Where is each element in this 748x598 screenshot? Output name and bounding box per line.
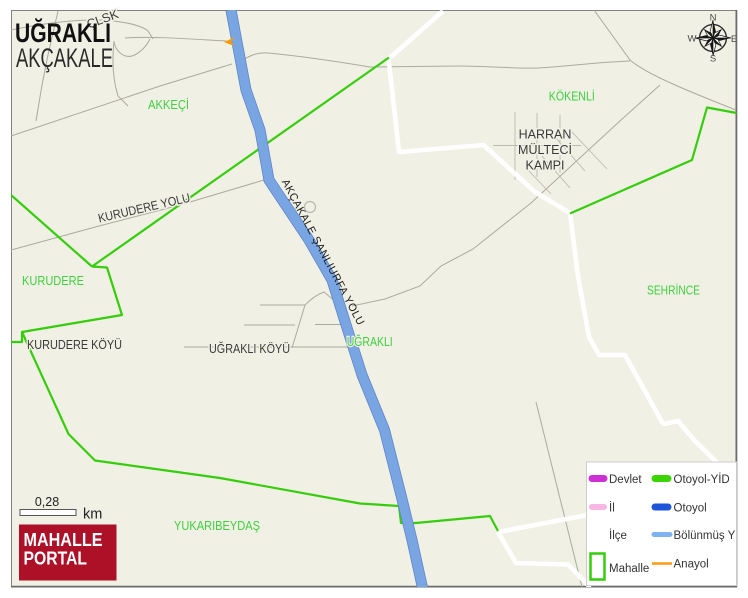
svg-text:S: S <box>710 54 716 65</box>
svg-text:Mahalle: Mahalle <box>609 563 649 575</box>
svg-text:AKKEÇİ: AKKEÇİ <box>148 98 189 112</box>
svg-text:MAHALLE: MAHALLE <box>24 530 103 550</box>
svg-text:PORTAL: PORTAL <box>24 549 88 569</box>
svg-text:İl: İl <box>609 502 615 515</box>
svg-text:KÖKENLİ: KÖKENLİ <box>549 90 595 104</box>
svg-text:KAMPI: KAMPI <box>526 159 565 173</box>
svg-text:KURUDERE KÖYÜ: KURUDERE KÖYÜ <box>27 338 122 352</box>
svg-text:Otoyol: Otoyol <box>674 503 707 515</box>
svg-text:0,28: 0,28 <box>35 495 59 509</box>
svg-text:W: W <box>688 34 697 45</box>
svg-text:Anayol: Anayol <box>674 559 709 571</box>
svg-text:SEHRİNCE: SEHRİNCE <box>647 284 700 298</box>
svg-text:KURUDERE: KURUDERE <box>22 274 84 288</box>
svg-text:YUKARIBEYDAŞ: YUKARIBEYDAŞ <box>174 519 260 533</box>
svg-text:Devlet: Devlet <box>609 474 642 486</box>
svg-text:E: E <box>731 34 737 45</box>
svg-text:Otoyol-YİD: Otoyol-YİD <box>674 473 730 486</box>
svg-text:Bölünmüş Y: Bölünmüş Y <box>674 530 736 542</box>
svg-text:UĞRAKLI KÖYÜ: UĞRAKLI KÖYÜ <box>209 341 290 356</box>
svg-text:km: km <box>83 507 102 523</box>
svg-text:UĞRAKLI: UĞRAKLI <box>347 334 393 349</box>
svg-text:İlçe: İlçe <box>609 529 627 542</box>
svg-text:AKÇAKALE: AKÇAKALE <box>16 43 113 73</box>
svg-text:MÜLTECİ: MÜLTECİ <box>518 143 572 157</box>
svg-text:HARRAN: HARRAN <box>519 128 572 142</box>
svg-text:N: N <box>710 13 717 24</box>
